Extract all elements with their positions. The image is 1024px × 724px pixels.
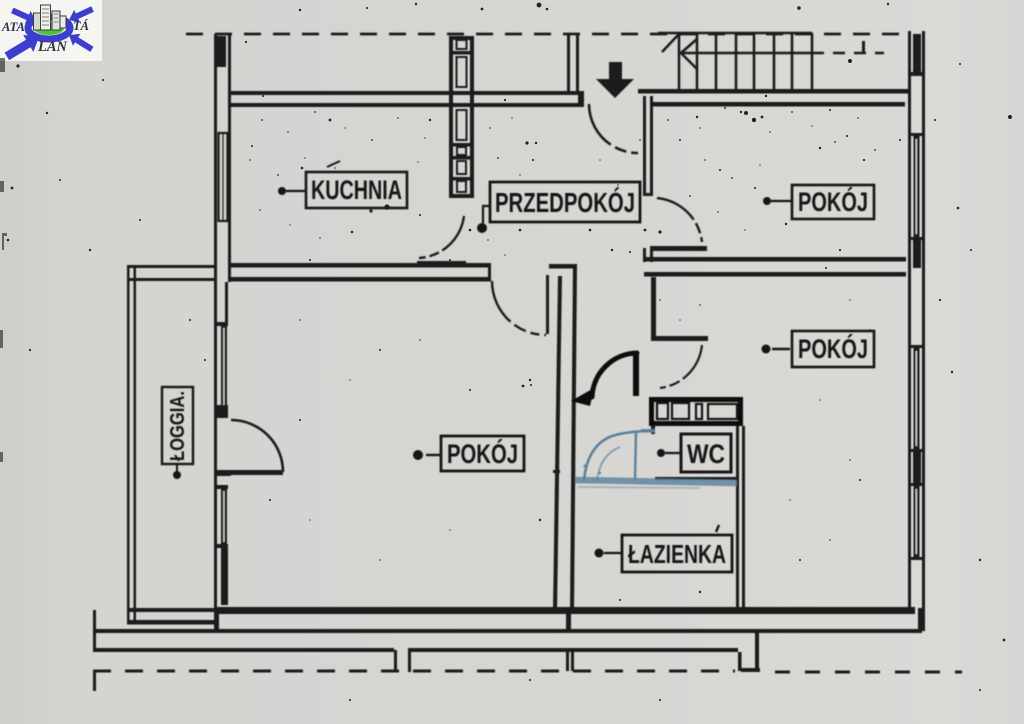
svg-text:POKÓJ: POKÓJ: [447, 438, 518, 469]
svg-text:ŁAZIENKA: ŁAZIENKA: [628, 539, 726, 569]
svg-text:LAN: LAN: [37, 39, 68, 55]
svg-text:KUCHNIA: KUCHNIA: [311, 175, 402, 205]
svg-text:TÁ: TÁ: [73, 19, 89, 33]
svg-text:POKÓJ: POKÓJ: [798, 186, 868, 217]
svg-text:PRZEDPOKÓJ: PRZEDPOKÓJ: [495, 187, 635, 218]
svg-text:ŁOGGIA.: ŁOGGIA.: [167, 391, 189, 461]
svg-text:POKÓJ: POKÓJ: [798, 333, 868, 364]
svg-text:ATA: ATA: [1, 20, 25, 34]
svg-text:WC: WC: [687, 439, 725, 469]
